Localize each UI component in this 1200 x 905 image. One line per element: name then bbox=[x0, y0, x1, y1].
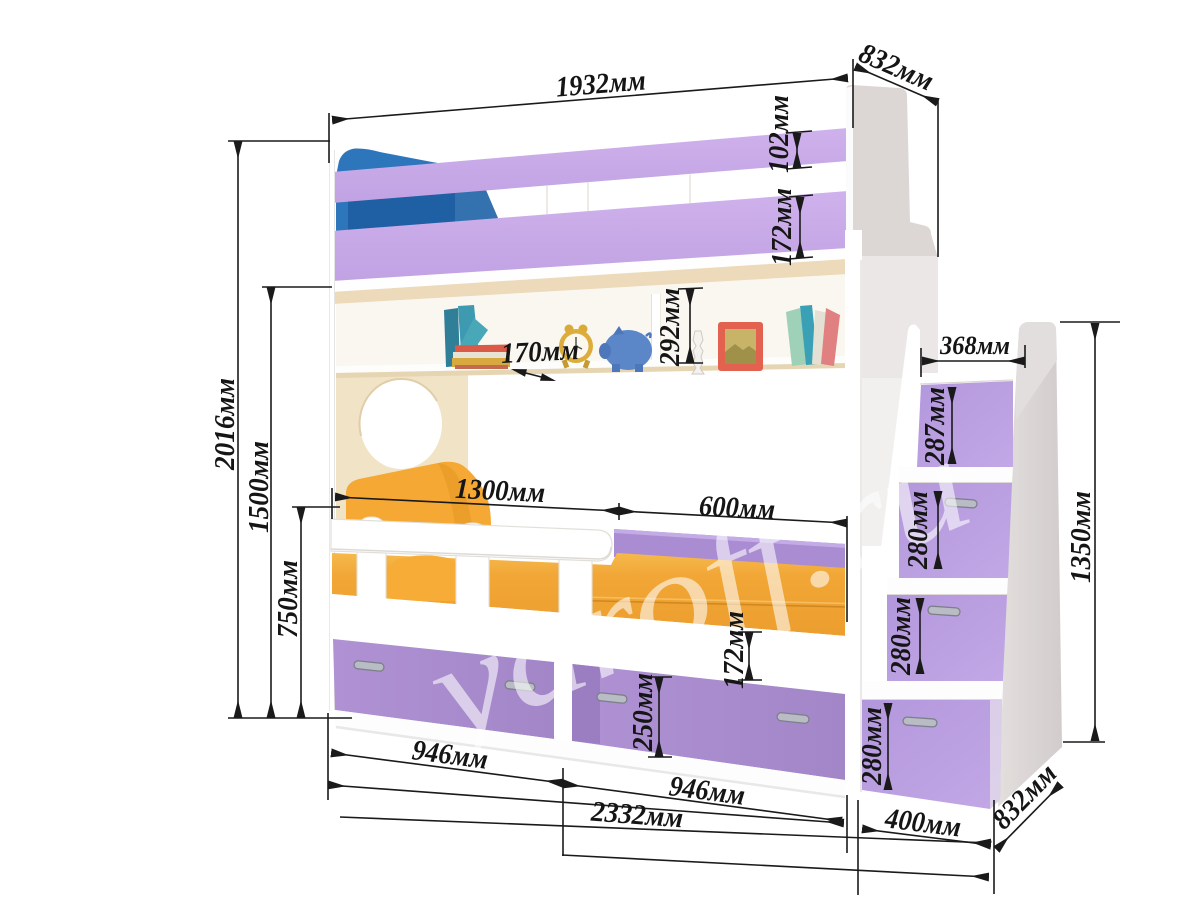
svg-text:292мм: 292мм bbox=[654, 288, 686, 367]
svg-text:1500мм: 1500мм bbox=[243, 441, 275, 533]
svg-text:287мм: 287мм bbox=[919, 387, 951, 466]
svg-text:280мм: 280мм bbox=[856, 707, 888, 786]
svg-text:102мм: 102мм bbox=[763, 95, 795, 173]
svg-text:368мм: 368мм bbox=[939, 331, 1010, 360]
svg-text:170мм: 170мм bbox=[500, 334, 580, 370]
svg-text:600мм: 600мм bbox=[698, 490, 776, 526]
svg-text:280мм: 280мм bbox=[885, 597, 917, 676]
svg-text:750мм: 750мм bbox=[272, 560, 304, 638]
svg-text:172мм: 172мм bbox=[766, 188, 798, 266]
svg-text:2016мм: 2016мм bbox=[209, 378, 241, 471]
svg-text:280мм: 280мм bbox=[902, 491, 934, 570]
svg-text:1300мм: 1300мм bbox=[454, 473, 545, 509]
svg-text:172мм: 172мм bbox=[718, 611, 750, 689]
svg-text:250мм: 250мм bbox=[627, 673, 659, 752]
svg-text:1350мм: 1350мм bbox=[1065, 491, 1097, 583]
